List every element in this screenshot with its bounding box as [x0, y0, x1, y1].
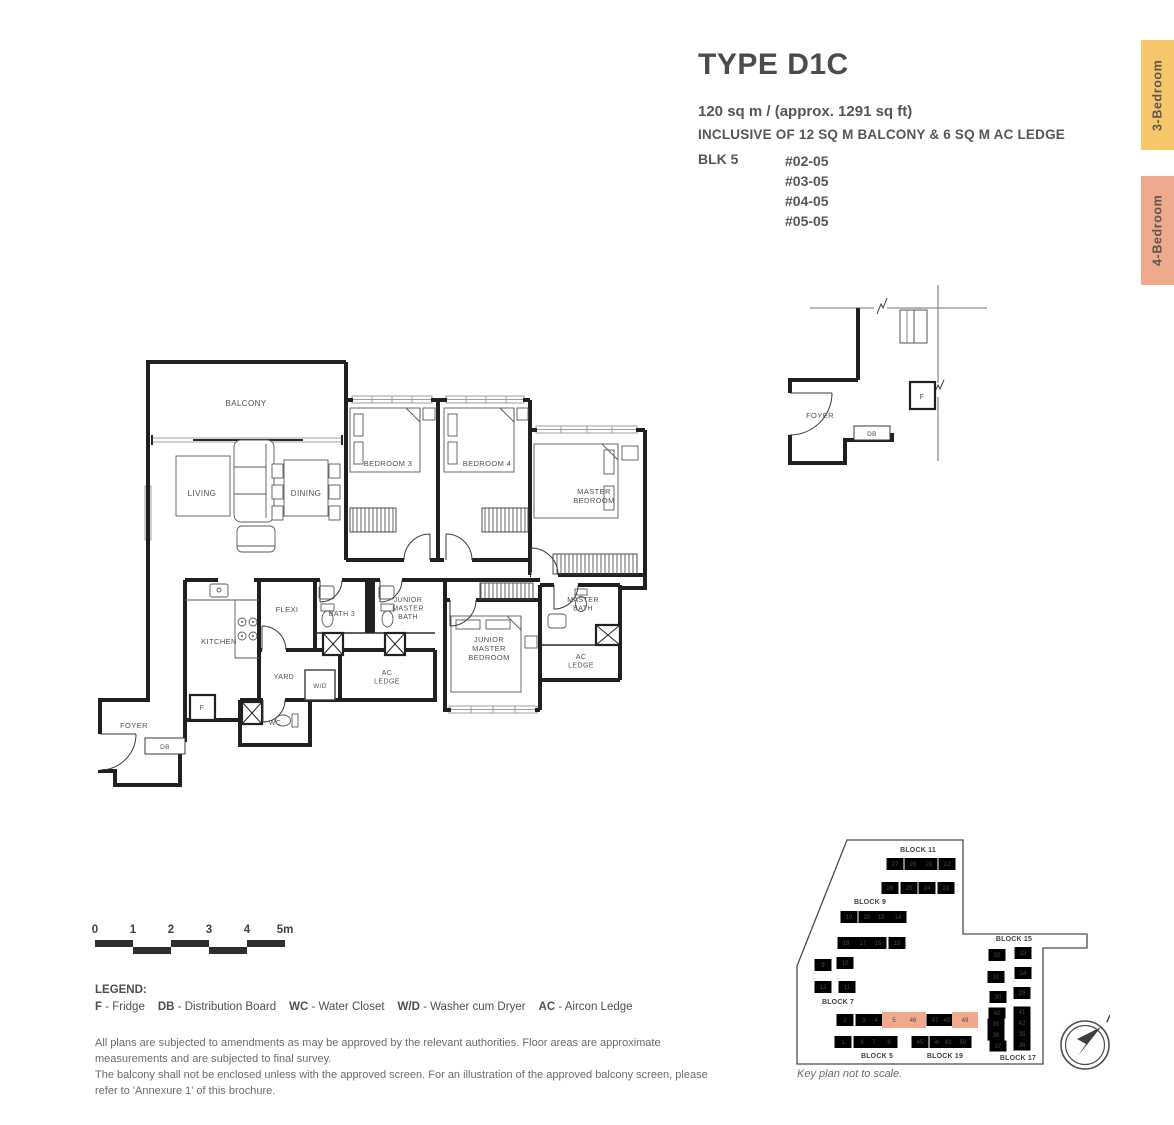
kitchen-fixtures [185, 584, 259, 658]
scale-tick-label: 0 [92, 924, 98, 936]
keyplan-unit-number: 19 [846, 915, 853, 921]
bed-master [534, 444, 638, 518]
keyplan-unit-number: 31 [993, 975, 1000, 981]
tab-3-bedroom[interactable]: 3-Bedroom [1141, 40, 1174, 150]
keyplan-unit-number: 20 [864, 915, 871, 921]
keyplan-unit-number: 16 [875, 941, 882, 947]
keyplan-unit-number: 46 [910, 1018, 917, 1024]
keyplan-unit-number: 30 [995, 995, 1002, 1001]
scale-tick-label: 4 [244, 924, 250, 936]
site-boundary [797, 840, 1087, 1064]
unit-number: #05-05 [785, 211, 829, 231]
room-label: FOYER [120, 721, 148, 730]
room-label: JUNIORMASTERBEDROOM [468, 635, 510, 662]
keyplan-block-label: BLOCK 5 [861, 1053, 893, 1060]
legend-items: F - FridgeDB - Distribution BoardWC - Wa… [95, 1001, 633, 1013]
compass-needle [1077, 1027, 1101, 1056]
keyplan-unit-number: 43 [945, 1040, 952, 1046]
legend-item: WC - Water Closet [289, 1001, 384, 1013]
living-rug [176, 456, 230, 516]
keyplan-block-label: BLOCK 19 [927, 1053, 963, 1060]
brochure-page: TYPE D1C 120 sq m / (approx. 1291 sq ft)… [0, 0, 1174, 1125]
room-label: KITCHEN [201, 637, 237, 646]
keyplan-unit-number: 26 [887, 886, 894, 892]
keyplan-unit-number: 34 [1020, 971, 1027, 977]
unit-area: 120 sq m / (approx. 1291 sq ft) [698, 103, 912, 120]
keyplan-unit-number: 37 [995, 1044, 1002, 1050]
room-label: W/D [313, 683, 327, 690]
stove [238, 618, 257, 640]
room-label: WC [269, 720, 281, 727]
keyplan-unit-number: 13 [878, 915, 885, 921]
keyplan-unit-number: 36 [1019, 1043, 1026, 1049]
room-label: DINING [291, 489, 321, 498]
keyplan-unit-number: 35 [1019, 1032, 1026, 1038]
disclaimer-text: All plans are subjected to amendments as… [95, 1036, 717, 1100]
keyplan-unit-number: 18 [843, 941, 850, 947]
key-plan: BLOCK 112728212226252423BLOCK 9192013141… [790, 836, 1110, 1076]
reference-lines [810, 285, 987, 461]
sofa [234, 440, 274, 522]
upper-partial-plan: FOYERDBF [780, 283, 990, 478]
scale-tick-label: 5m [277, 924, 294, 936]
keyplan-unit-number: 40 [994, 1011, 1001, 1017]
room-label: BEDROOM 3 [364, 459, 413, 468]
floor-plan: BALCONYLIVINGDININGBEDROOM 3BEDROOM 4MAS… [88, 348, 668, 806]
keyplan-unit-number: 23 [943, 886, 950, 892]
keyplan-unit-number: 47 [932, 1018, 939, 1024]
legend-item: AC - Aircon Ledge [539, 1001, 633, 1013]
keyplan-unit-number: 10 [842, 961, 849, 967]
scale-bar-segment [209, 947, 247, 954]
keyplan-unit-number: 45 [917, 1040, 924, 1046]
keyplan-unit-number: 14 [895, 915, 902, 921]
room-label: BALCONY [225, 399, 266, 408]
kitchen-sink [210, 584, 228, 597]
tab-4-bedroom[interactable]: 4-Bedroom [1141, 176, 1174, 285]
keyplan-unit-number: 12 [820, 985, 827, 991]
keyplan-unit-number: 49 [962, 1018, 969, 1024]
room-label: MASTERBEDROOM [573, 487, 615, 505]
compass: N [1061, 1013, 1110, 1069]
keyplan-unit-number: 33 [1020, 951, 1027, 957]
keyplan-unit-number: 22 [944, 862, 951, 868]
keyplan-unit-number: 27 [892, 862, 899, 868]
keyplan-unit-number: 25 [906, 886, 913, 892]
legend-item: W/D - Washer cum Dryer [398, 1001, 526, 1013]
room-label: ACLEDGE [374, 670, 400, 685]
scale-bar-segment [247, 940, 285, 947]
scale-bar-segment [171, 940, 209, 947]
scale-tick-label: 3 [206, 924, 212, 936]
legend-item: DB - Distribution Board [158, 1001, 276, 1013]
legend-item: F - Fridge [95, 1001, 145, 1013]
keyplan-caption: Key plan not to scale. [797, 1068, 902, 1080]
walls [790, 308, 935, 463]
unit-number: #04-05 [785, 191, 829, 211]
room-label: MASTERBATH [567, 597, 599, 612]
shaft-xbox [242, 702, 262, 724]
unit-number: #03-05 [785, 171, 829, 191]
shaft-xbox [596, 625, 620, 645]
legend-heading: LEGEND: [95, 984, 633, 996]
keyplan-unit-number: 41 [1019, 1010, 1026, 1016]
keyplan-block-label: BLOCK 7 [822, 999, 854, 1006]
keyplan-blocks: BLOCK 112728212226252423BLOCK 9192013141… [815, 847, 1037, 1062]
legend: LEGEND: F - FridgeDB - Distribution Boar… [95, 984, 633, 1013]
scale-bar-segment [95, 940, 133, 947]
scale-bar-segment [133, 947, 171, 954]
keyplan-block-label: BLOCK 9 [854, 899, 886, 906]
scale-tick-label: 2 [168, 924, 174, 936]
scale-tick-label: 1 [130, 924, 136, 936]
ducts [900, 310, 927, 343]
unit-number-list: #02-05#03-05#04-05#05-05 [785, 151, 829, 231]
keyplan-unit-number: 38 [993, 1033, 1000, 1039]
room-label: JUNIORMASTERBATH [392, 597, 424, 621]
room-label: F [920, 394, 925, 401]
room-label: F [200, 705, 205, 712]
armchair [237, 526, 275, 552]
keyplan-unit-number: 29 [1019, 991, 1026, 997]
room-label: BEDROOM 4 [463, 459, 512, 468]
page-title: TYPE D1C [698, 48, 849, 82]
room-label: FOYER [806, 411, 834, 420]
room-label: YARD [274, 674, 295, 681]
keyplan-unit-number: 17 [860, 941, 867, 947]
keyplan-unit-number: 50 [960, 1040, 967, 1046]
shaft-xbox [385, 633, 405, 655]
disclaimer-paragraph: The balcony shall not be enclosed unless… [95, 1068, 717, 1100]
keyplan-unit-number: 39 [993, 1022, 1000, 1028]
block-label: BLK 5 [698, 151, 738, 167]
room-label: LIVING [188, 489, 217, 498]
keyplan-unit-number: 32 [994, 953, 1001, 959]
keyplan-unit-number: 48 [944, 1018, 951, 1024]
room-label: BATH 3 [329, 611, 355, 618]
room-label: DB [867, 431, 877, 438]
dining-table [284, 460, 328, 516]
compass-n-label: N [1105, 1013, 1110, 1027]
keyplan-unit-number: 24 [924, 886, 931, 892]
room-label: DB [160, 744, 170, 751]
keyplan-block-label: BLOCK 11 [900, 847, 936, 854]
keyplan-unit-number: 11 [844, 985, 851, 991]
keyplan-block-label: BLOCK 17 [1000, 1055, 1036, 1062]
keyplan-unit-number: 15 [894, 941, 901, 947]
keyplan-unit-number: 28 [910, 862, 917, 868]
unit-number: #02-05 [785, 151, 829, 171]
room-label: FLEXI [276, 605, 299, 614]
bath3-fixtures [319, 586, 334, 627]
disclaimer-paragraph: All plans are subjected to amendments as… [95, 1036, 717, 1068]
room-label: ACLEDGE [568, 654, 594, 669]
shaft-xbox [323, 633, 343, 655]
area-inclusive-note: INCLUSIVE OF 12 SQ M BALCONY & 6 SQ M AC… [698, 127, 1065, 142]
keyplan-block-label: BLOCK 15 [996, 936, 1032, 943]
keyplan-unit-number: 42 [1019, 1021, 1026, 1027]
scale-bar: 012345m [95, 924, 315, 958]
keyplan-unit-number: 21 [926, 862, 933, 868]
